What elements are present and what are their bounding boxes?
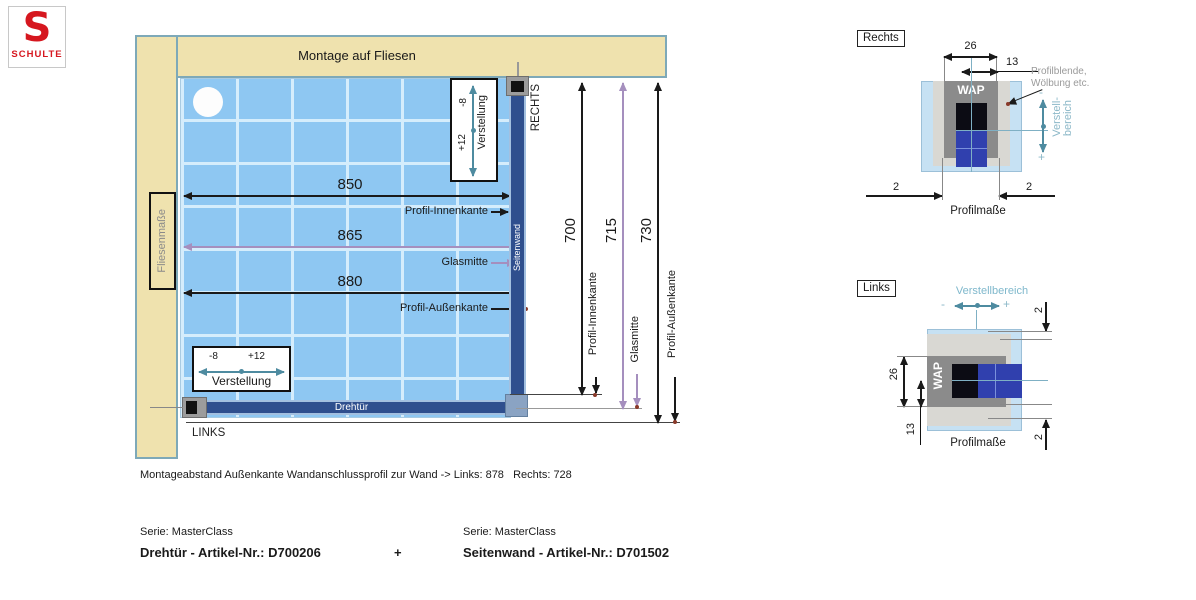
- adjust-bottom-plus: +12: [248, 351, 265, 363]
- wall-anchor-icon: [511, 81, 524, 92]
- detail-left-glass-line: [995, 364, 996, 398]
- detail-right-dim13-value: 13: [1006, 56, 1018, 69]
- detail-left-adjust-label: Verstellbereich: [936, 285, 1048, 298]
- detail-left-glass-dark: [952, 364, 978, 398]
- ext-line-left: [150, 407, 183, 408]
- pivot-door-label: Drehtür: [335, 402, 368, 413]
- detail-right-gap-right-value: 2: [1026, 181, 1032, 194]
- dim-730-arrow: [657, 83, 659, 423]
- adjust-top-minus: -8: [459, 98, 469, 107]
- dim-850-value: 850: [300, 176, 400, 193]
- detail-right-gap-ext-a: [942, 158, 943, 200]
- dim-700-pointer-dot: [593, 393, 597, 397]
- detail-left-title: Links: [857, 280, 896, 297]
- dim-715-value: 715: [604, 218, 619, 243]
- detail-right-gap-left-value: 2: [893, 181, 899, 194]
- dim-880-edge-label: Profil-Außenkante: [352, 302, 488, 315]
- drain-circle: [193, 87, 223, 117]
- dim-850-edge-label: Profil-Innenkante: [352, 205, 488, 218]
- tile-scale-box: Fliesenmaße: [149, 192, 176, 290]
- detail-left-dim26-ext-a: [897, 356, 930, 357]
- article-plus-sign: +: [394, 546, 402, 561]
- dim-850-pointer: [491, 211, 508, 213]
- dim-730-pointer: [674, 377, 676, 421]
- wall-mount-label: Montage auf Fliesen: [167, 49, 547, 64]
- detail-left-gap-top-arrow: [1045, 302, 1047, 331]
- dim-715-pointer-dot: [635, 405, 639, 409]
- adjust-bottom-label: Verstellung: [192, 375, 291, 389]
- detail-left-centerline-h: [952, 380, 1048, 381]
- schulte-logo-text: SCHULTE: [9, 49, 65, 60]
- detail-left-adjust-minus: -: [941, 298, 945, 312]
- dim-880-value: 880: [300, 273, 400, 290]
- detail-right-dim26-ext-a: [944, 58, 945, 82]
- adjust-top-plus: +12: [458, 134, 468, 151]
- detail-left-gap-bottom-value: 2: [1034, 434, 1045, 440]
- installation-drawing-canvas: S SCHULTE Montage auf Fliesen Fliesenmaß…: [0, 0, 1196, 600]
- detail-right-centerline-v: [971, 58, 972, 172]
- detail-left-gap-top-value: 2: [1034, 307, 1045, 313]
- corner-connector: [505, 394, 528, 417]
- side-wall-label: Seitenwand: [513, 224, 522, 271]
- dim-715-edge-label: Glasmitte: [630, 316, 641, 362]
- detail-left-dim13-value: 13: [906, 423, 917, 435]
- adjust-bottom-minus: -8: [209, 351, 218, 363]
- detail-left-glass-blue: [978, 364, 1022, 398]
- schulte-logo-mark-icon: S: [9, 8, 65, 48]
- detail-left-gap-bottom-arrow: [1045, 420, 1047, 450]
- detail-left-gap-top-ext-a: [988, 331, 1052, 332]
- article-number-door: Drehtür - Artikel-Nr.: D700206: [140, 546, 321, 561]
- dim-700-value: 700: [563, 218, 578, 243]
- dim-865-arrow: [184, 246, 517, 248]
- adjust-top-label: Verstellung: [477, 95, 488, 149]
- detail-left-gap-bottom-ext-a: [1000, 404, 1052, 405]
- dim-730-pointer-dot: [673, 420, 677, 424]
- detail-left-dim13-arrow: [920, 381, 922, 407]
- detail-right-gap-right-arrow: [999, 195, 1055, 197]
- detail-left-adjust-plus: +: [1003, 298, 1010, 312]
- detail-left-caption: Profilmaße: [928, 437, 1028, 450]
- door-hinge-icon: [186, 401, 197, 414]
- detail-left-adjust-dot: [975, 303, 980, 308]
- dim-730-value: 730: [639, 218, 654, 243]
- detail-left-dim26-ext-b: [897, 406, 930, 407]
- side-left-label: LINKS: [192, 427, 225, 440]
- dim-700-pointer: [595, 377, 597, 393]
- detail-right-note-line1: Profilblende,: [1031, 66, 1087, 78]
- dim-730-edge-label: Profil-Außenkante: [667, 270, 678, 358]
- ext-line-outer: [186, 422, 680, 423]
- dim-865-edge-label: Glasmitte: [385, 256, 488, 269]
- side-wall-profile: Seitenwand: [509, 94, 526, 401]
- detail-right-gap-ext-b: [999, 158, 1000, 200]
- detail-right-gap-left-arrow: [866, 195, 942, 197]
- tile-scale-label: Fliesenmaße: [157, 209, 168, 273]
- article-number-sidewall: Seitenwand - Artikel-Nr.: D701502: [463, 546, 669, 561]
- dim-880-arrow: [184, 292, 524, 294]
- detail-right-title: Rechts: [857, 30, 905, 47]
- detail-right-dim26-value: 26: [944, 40, 997, 53]
- mount-distance-note: Montageabstand Außenkante Wandanschlussp…: [140, 469, 572, 482]
- side-wall-centerline: [517, 62, 519, 76]
- detail-left-gap-bottom-ext-b: [988, 418, 1052, 419]
- detail-right-centerline-h: [956, 130, 1048, 131]
- detail-right-adjust-dot: [1041, 124, 1046, 129]
- detail-right-adjust-minus: -: [1039, 86, 1043, 100]
- detail-right-adjust-label2: bereich: [1063, 100, 1074, 136]
- schulte-logo: S SCHULTE: [8, 6, 66, 68]
- pivot-door-profile: Drehtür: [196, 400, 507, 415]
- dim-865-value: 865: [300, 227, 400, 244]
- detail-left-dim13-tail: [920, 407, 921, 445]
- detail-right-adjust-plus: +: [1038, 151, 1045, 165]
- dim-850-arrow: [184, 195, 510, 197]
- detail-left-dim26-arrow: [903, 357, 905, 407]
- dim-715-arrow: [622, 83, 624, 409]
- dim-715-pointer: [636, 374, 638, 406]
- detail-right-note-dot: [1006, 102, 1010, 106]
- dim-700-edge-label: Profil-Innenkante: [588, 272, 599, 355]
- detail-right-dim13-arrow: [962, 71, 998, 73]
- dim-700-arrow: [581, 83, 583, 395]
- series-label-left: Serie: MasterClass: [140, 526, 233, 539]
- detail-left-profile-label: WAP: [932, 362, 944, 389]
- series-label-right: Serie: MasterClass: [463, 526, 556, 539]
- ext-line-inner: [510, 394, 602, 395]
- detail-left-gap-top-ext-b: [1000, 339, 1052, 340]
- side-right-label: RECHTS: [531, 84, 543, 131]
- detail-left-dim26-value: 26: [889, 368, 900, 380]
- detail-right-caption: Profilmaße: [928, 205, 1028, 218]
